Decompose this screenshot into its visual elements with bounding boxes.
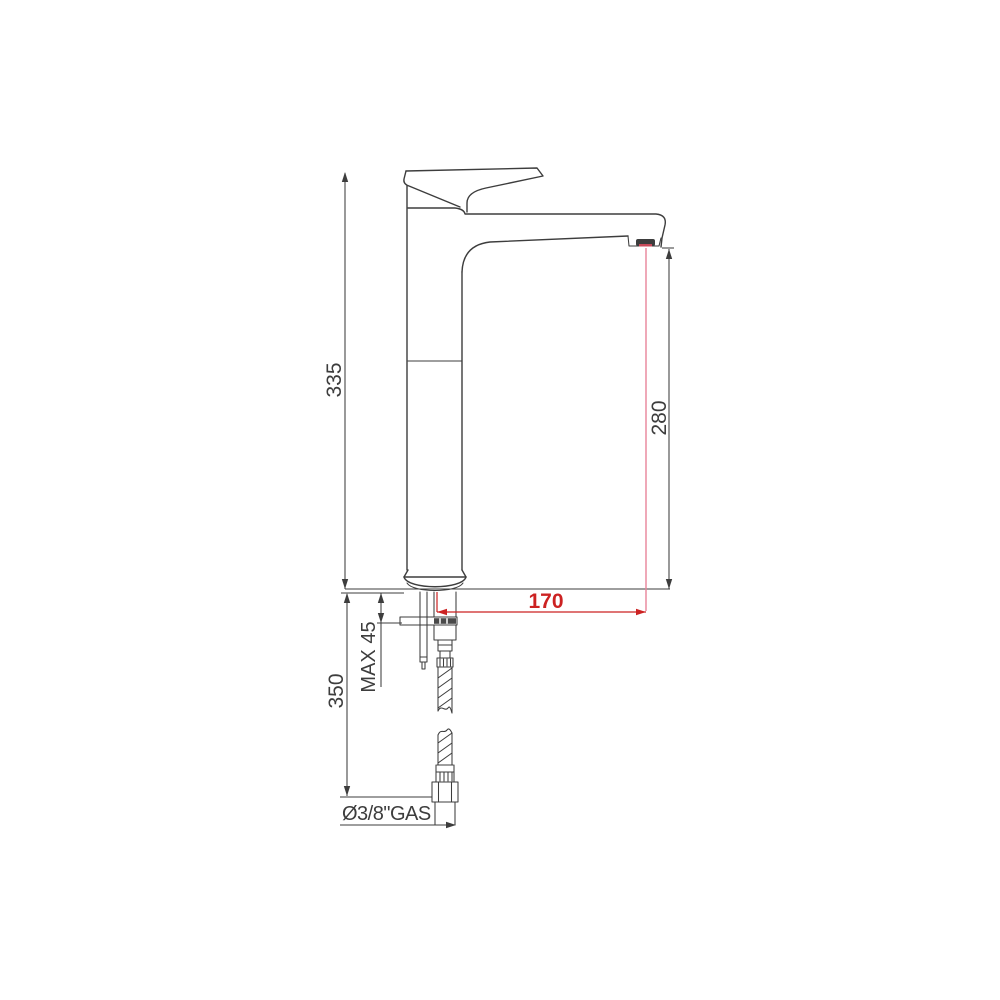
dim-335-label: 335 — [323, 362, 346, 397]
dim-350-arrow-down — [344, 786, 350, 796]
drawing-page: 335 280 170 350 MAX 45 Ø3/8"GA — [0, 0, 1000, 1000]
dim-170-label: 170 — [528, 590, 563, 613]
hex-nut — [432, 782, 458, 802]
dim-gas-label: Ø3/8"GAS — [342, 803, 431, 825]
dim-280-arrow-down — [666, 579, 672, 589]
dim-335-arrow-down — [342, 579, 348, 589]
dim-170-arrow-left — [437, 609, 447, 615]
dim-connection-size: Ø3/8"GAS — [340, 803, 456, 828]
plate-thread-section — [434, 618, 456, 624]
stud-tip — [422, 662, 425, 669]
shank-step — [438, 640, 452, 651]
handle-lever — [404, 168, 543, 212]
threaded-stud — [420, 592, 427, 669]
faucet — [345, 168, 670, 825]
nut-facets — [439, 782, 452, 802]
dim-350-label: 350 — [325, 673, 348, 708]
hose-break-bottom — [438, 707, 452, 713]
flange-bottom-arc — [404, 577, 466, 587]
dim-outlet-height-280: 280 — [648, 248, 674, 589]
shank-block — [434, 625, 456, 640]
shank-lower — [434, 625, 456, 658]
below-deck-assembly — [400, 592, 458, 825]
dim-overall-height-335: 335 — [323, 172, 348, 589]
supply-hose-upper — [438, 667, 452, 713]
flange-sides — [404, 570, 466, 577]
handle-pivot-edge — [404, 171, 460, 207]
nut-outline — [432, 782, 458, 802]
body-and-spout — [407, 186, 665, 570]
dim-170-arrow-right — [636, 609, 646, 615]
dim-335-arrow-up — [342, 172, 348, 182]
supply-hose-lower — [438, 729, 452, 765]
hose-lower-hatch — [438, 733, 452, 763]
base-flange — [404, 570, 466, 591]
stud-nut — [420, 657, 427, 662]
dim-350-arrow-up — [344, 593, 350, 603]
hose-crimp-upper — [437, 658, 453, 667]
dim-max-deck-45: MAX 45 — [358, 593, 402, 693]
dim-280-label: 280 — [648, 400, 671, 435]
aerator-accent — [639, 244, 652, 247]
faucet-technical-drawing: 335 280 170 350 MAX 45 Ø3/8"GA — [0, 0, 1000, 1000]
connection-nipple — [435, 802, 455, 825]
spout-underside — [462, 236, 628, 272]
dim-max45-label: MAX 45 — [358, 621, 380, 692]
dim-max45-arrow-up — [378, 593, 384, 603]
dim-spout-reach-170: 170 — [437, 248, 646, 615]
dim-280-arrow-up — [666, 249, 672, 259]
crimp-lower-lines — [436, 765, 454, 782]
spout-top-outline — [408, 208, 665, 247]
handle-lever-outline — [406, 168, 543, 212]
shank-neck — [440, 651, 450, 658]
crimp-upper-lines — [437, 658, 453, 667]
hose-upper-hatch — [438, 668, 452, 708]
hose-crimp-lower — [436, 765, 454, 782]
mounting-plate — [400, 617, 457, 625]
